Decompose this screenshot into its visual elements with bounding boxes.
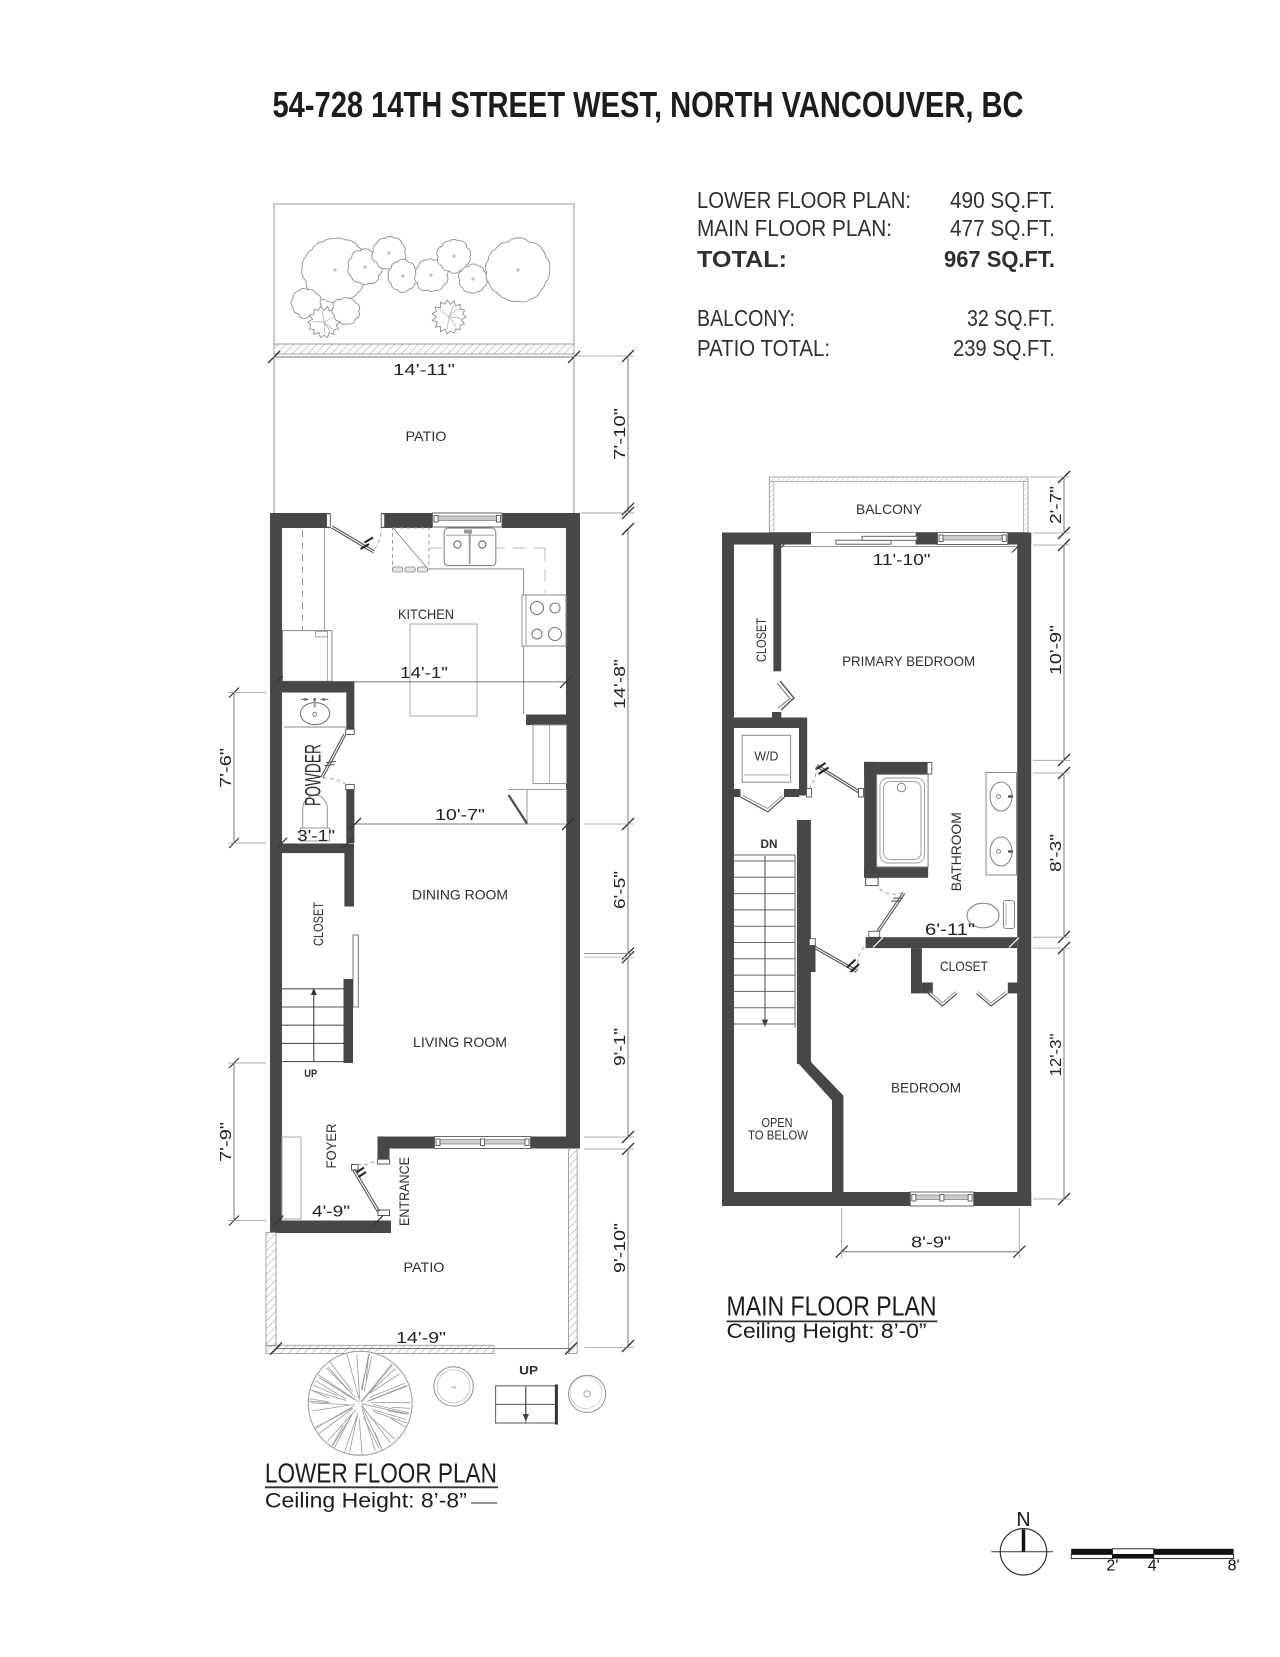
- svg-text:7'-9": 7'-9": [218, 1122, 235, 1162]
- svg-text:10'-7": 10'-7": [435, 807, 485, 824]
- svg-text:CLOSET: CLOSET: [753, 618, 769, 662]
- svg-text:KITCHEN: KITCHEN: [398, 606, 454, 622]
- svg-text:LIVING ROOM: LIVING ROOM: [413, 1034, 507, 1050]
- svg-text:DN: DN: [761, 839, 778, 851]
- svg-text:W/D: W/D: [754, 750, 778, 764]
- svg-text:8'-9": 8'-9": [911, 1235, 951, 1252]
- svg-text:PATIO TOTAL:: PATIO TOTAL:: [697, 335, 830, 361]
- svg-text:BALCONY: BALCONY: [856, 501, 923, 517]
- svg-text:2': 2': [1106, 1558, 1118, 1575]
- svg-text:14'-9": 14'-9": [396, 1330, 446, 1347]
- svg-text:LOWER FLOOR PLAN:: LOWER FLOOR PLAN:: [697, 187, 911, 213]
- svg-text:BALCONY:: BALCONY:: [697, 305, 795, 331]
- svg-text:32 SQ.FT.: 32 SQ.FT.: [967, 305, 1055, 331]
- svg-text:BEDROOM: BEDROOM: [891, 1080, 961, 1096]
- svg-text:N: N: [1017, 1509, 1031, 1531]
- svg-text:FOYER: FOYER: [323, 1124, 339, 1169]
- svg-text:MAIN FLOOR PLAN: MAIN FLOOR PLAN: [727, 1291, 937, 1322]
- svg-text:CLOSET: CLOSET: [310, 902, 326, 946]
- svg-text:490 SQ.FT.: 490 SQ.FT.: [950, 187, 1055, 213]
- svg-text:11'-10": 11'-10": [873, 552, 931, 569]
- svg-text:7'-10": 7'-10": [612, 408, 629, 460]
- svg-text:POWDER: POWDER: [301, 744, 326, 806]
- svg-text:14'-8": 14'-8": [612, 659, 629, 709]
- svg-text:LOWER FLOOR PLAN: LOWER FLOOR PLAN: [265, 1458, 497, 1489]
- svg-text:UP: UP: [304, 1068, 317, 1080]
- svg-text:MAIN FLOOR PLAN:: MAIN FLOOR PLAN:: [697, 215, 892, 241]
- svg-text:9'-1": 9'-1": [612, 1028, 629, 1066]
- svg-text:6'-5": 6'-5": [612, 871, 629, 909]
- svg-text:4'-9": 4'-9": [312, 1204, 350, 1221]
- svg-text:4': 4': [1148, 1558, 1160, 1575]
- svg-text:Ceiling Height: 8’-8”: Ceiling Height: 8’-8”: [265, 1490, 467, 1513]
- svg-text:2'-7": 2'-7": [1048, 486, 1065, 524]
- svg-text:TO BELOW: TO BELOW: [748, 1128, 809, 1143]
- svg-text:477 SQ.FT.: 477 SQ.FT.: [950, 215, 1055, 241]
- svg-text:PRIMARY BEDROOM: PRIMARY BEDROOM: [842, 653, 975, 669]
- svg-text:Ceiling Height: 8’-0”: Ceiling Height: 8’-0”: [727, 1320, 927, 1343]
- svg-text:6'-11": 6'-11": [925, 920, 975, 939]
- svg-text:DINING ROOM: DINING ROOM: [412, 887, 508, 903]
- svg-text:54-728 14TH STREET WEST, NORTH: 54-728 14TH STREET WEST, NORTH VANCOUVER…: [273, 84, 1024, 125]
- svg-text:12'-3": 12'-3": [1048, 1034, 1065, 1077]
- svg-text:9'-10": 9'-10": [612, 1223, 629, 1273]
- svg-text:239 SQ.FT.: 239 SQ.FT.: [953, 335, 1055, 361]
- svg-text:7'-6": 7'-6": [218, 748, 235, 788]
- svg-text:8'-3": 8'-3": [1048, 834, 1065, 872]
- svg-text:3'-1": 3'-1": [297, 828, 335, 845]
- svg-text:UP: UP: [519, 1364, 538, 1378]
- svg-text:PATIO: PATIO: [404, 1259, 445, 1275]
- svg-text:10'-9": 10'-9": [1048, 625, 1065, 675]
- svg-text:ENTRANCE: ENTRANCE: [396, 1157, 412, 1226]
- svg-text:CLOSET: CLOSET: [940, 958, 988, 974]
- svg-text:BATHROOM: BATHROOM: [948, 812, 964, 891]
- svg-text:14'-1": 14'-1": [400, 665, 448, 682]
- svg-text:TOTAL:: TOTAL:: [697, 246, 787, 272]
- svg-text:14'-11": 14'-11": [393, 362, 455, 379]
- svg-text:8': 8': [1228, 1558, 1240, 1575]
- svg-text:PATIO: PATIO: [406, 428, 447, 444]
- svg-text:967 SQ.FT.: 967 SQ.FT.: [944, 246, 1055, 272]
